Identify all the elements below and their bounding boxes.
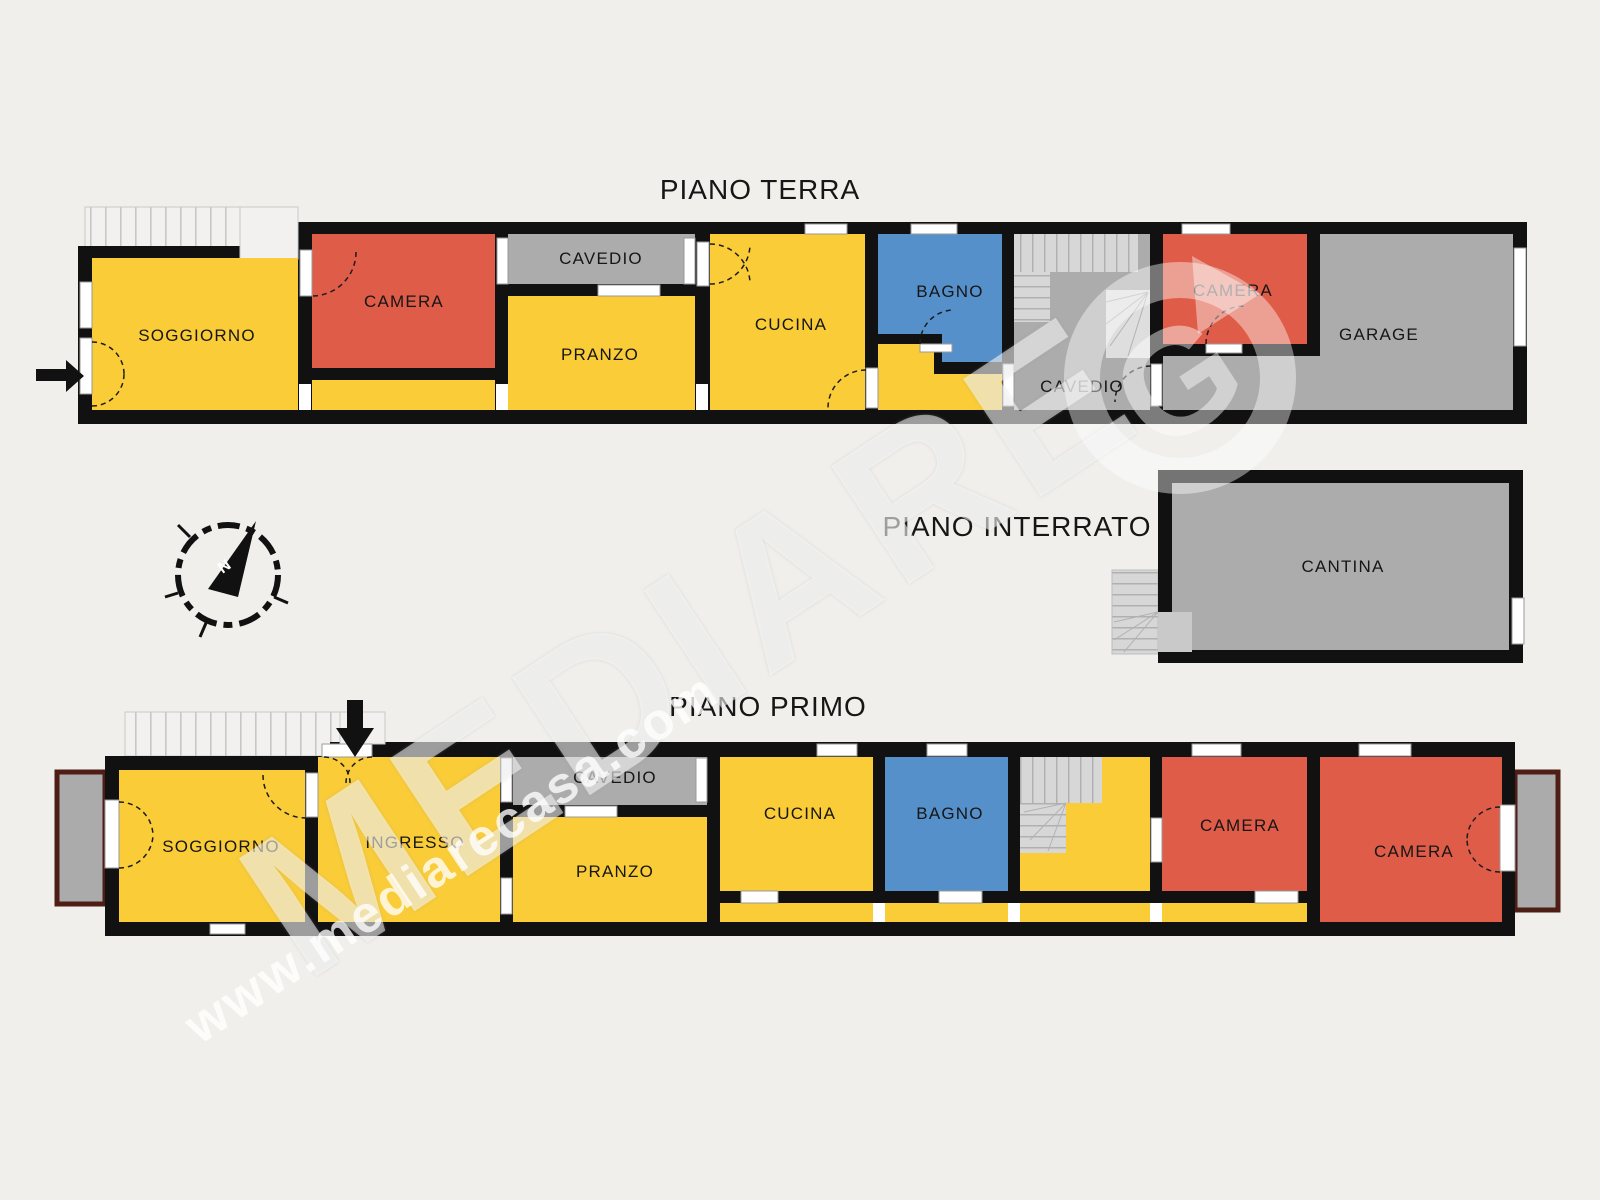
floorplan-page: N MEDIARE www.mediarecasa.com G PIANO TE…	[0, 0, 1600, 1200]
watermark-logo: G	[0, 0, 1600, 1200]
